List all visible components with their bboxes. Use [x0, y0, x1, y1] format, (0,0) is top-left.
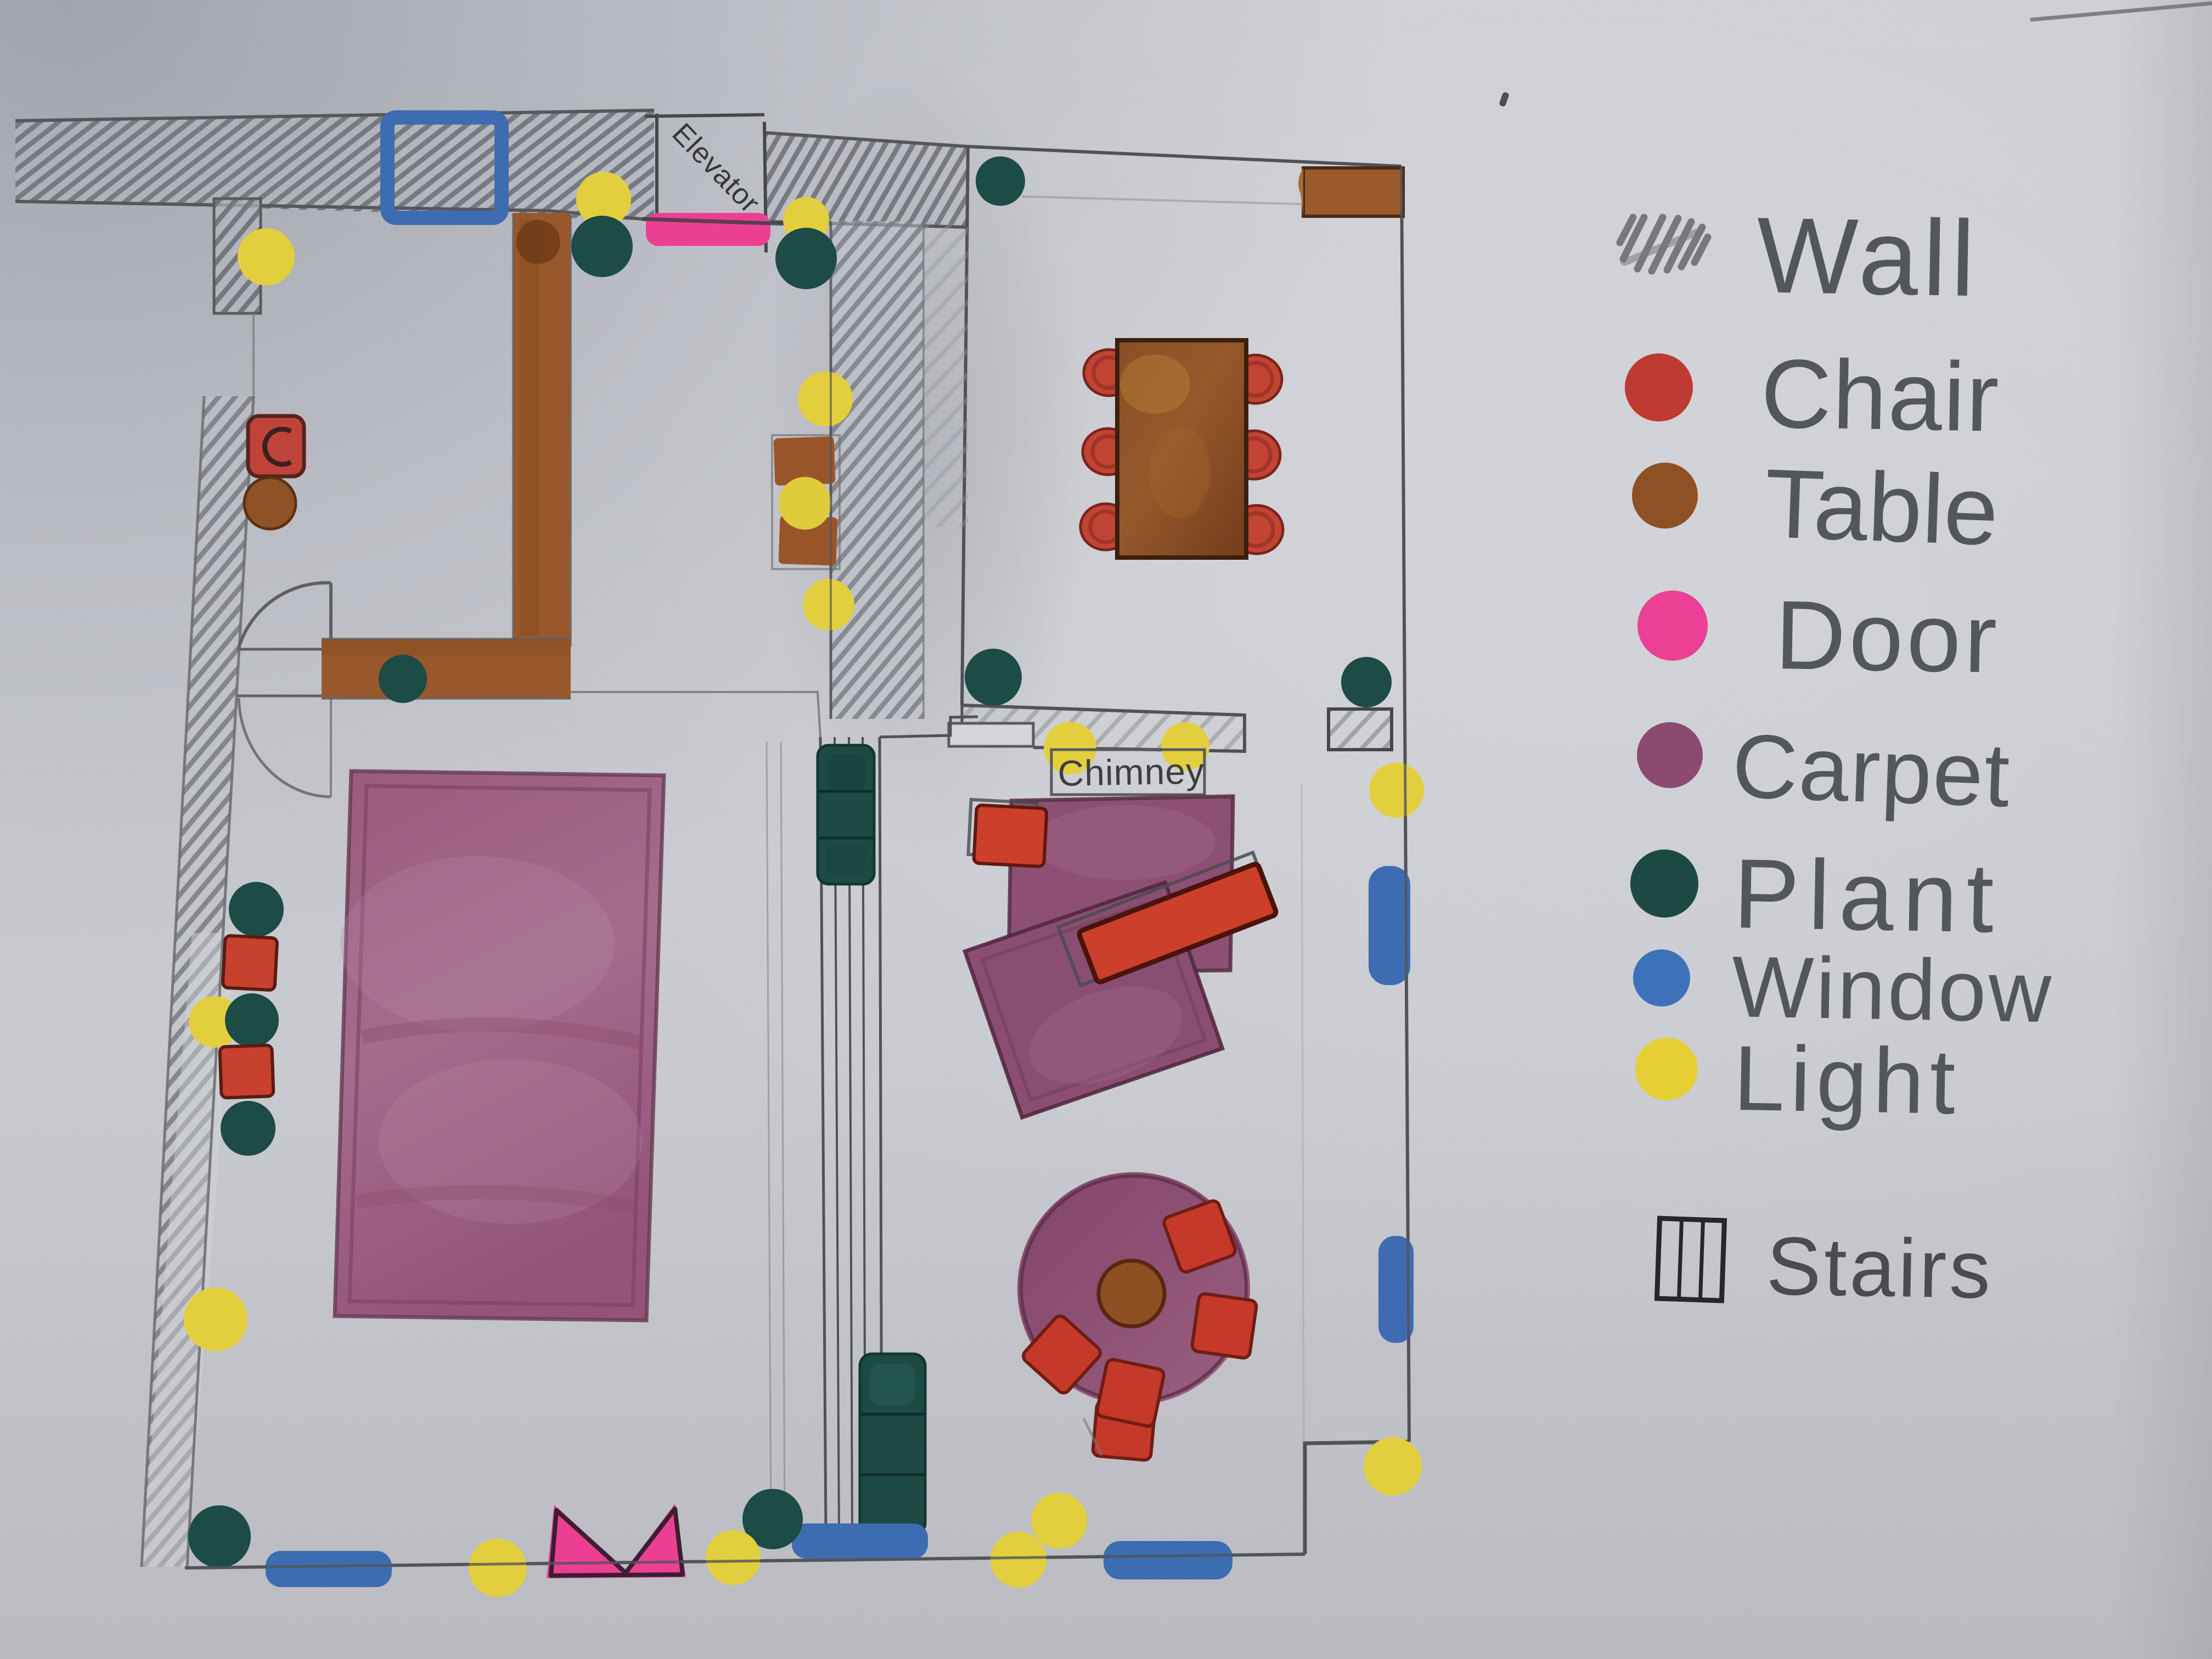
svg-text:Door: Door: [1774, 580, 2001, 693]
svg-text:Window: Window: [1731, 938, 2054, 1041]
svg-text:Chimney: Chimney: [1057, 750, 1205, 794]
svg-text:Carpet: Carpet: [1731, 715, 2012, 826]
svg-text:Wall: Wall: [1755, 195, 1980, 319]
svg-text:Plant: Plant: [1732, 839, 2003, 954]
svg-text:Chair: Chair: [1760, 339, 2001, 452]
svg-text:Stairs: Stairs: [1765, 1219, 1994, 1315]
svg-text:Table: Table: [1763, 448, 2000, 566]
svg-text:Light: Light: [1732, 1026, 1962, 1133]
